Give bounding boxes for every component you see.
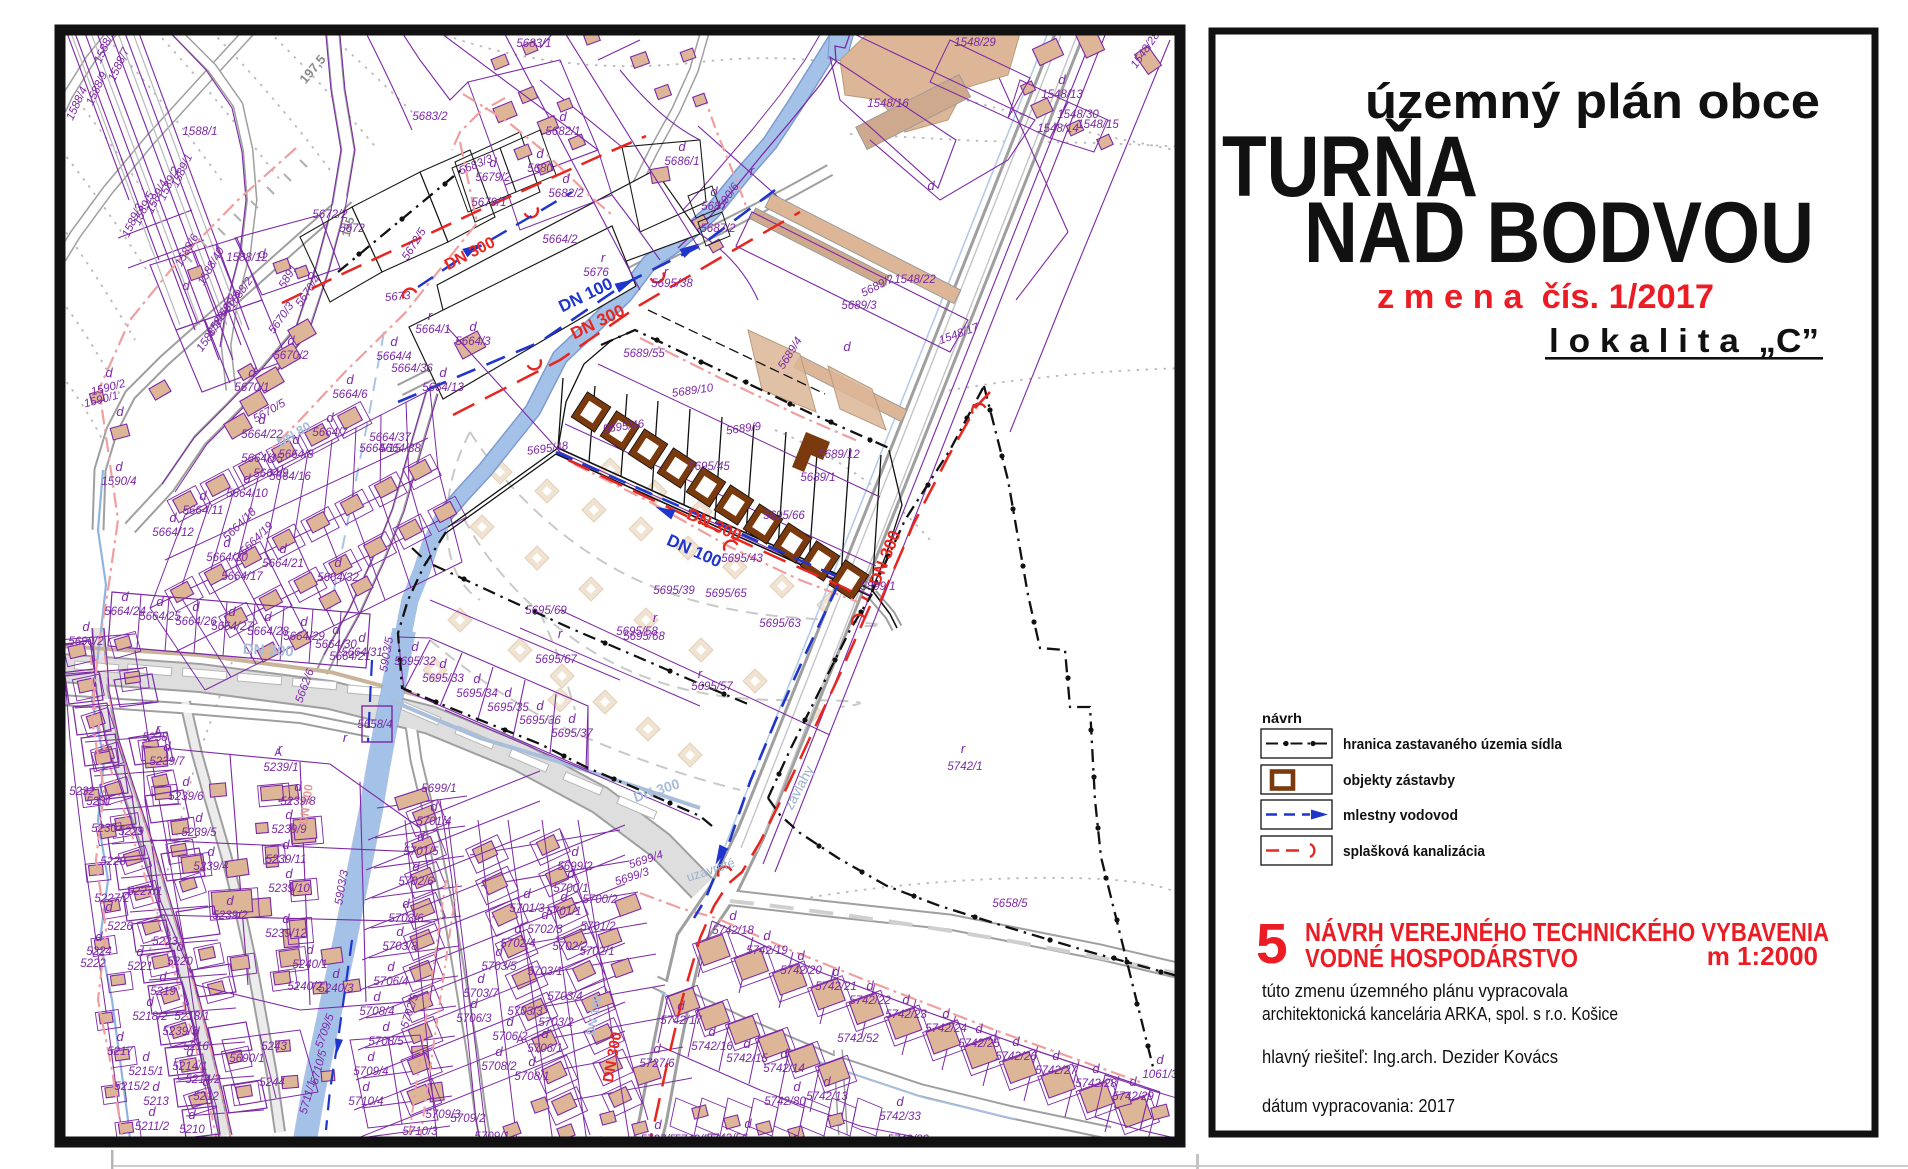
svg-text:5676: 5676 [583,267,609,279]
svg-text:5228: 5228 [100,856,126,868]
svg-text:5664/2: 5664/2 [542,234,578,246]
svg-text:5664/8: 5664/8 [278,449,314,461]
svg-text:5706/3: 5706/3 [456,1013,492,1025]
svg-text:5212: 5212 [193,1091,219,1103]
svg-text:5239/9: 5239/9 [271,824,307,836]
svg-text:5664/11: 5664/11 [183,505,224,517]
svg-text:5742/25: 5742/25 [958,1038,1000,1050]
svg-text:d: d [182,774,190,789]
svg-text:5701/1: 5701/1 [546,906,581,918]
svg-text:z m e n a čís. 1/2017: z m e n a čís. 1/2017 [1377,278,1714,316]
svg-text:5664/6: 5664/6 [332,389,368,401]
svg-text:5682/2: 5682/2 [548,188,584,200]
svg-text:d: d [186,1044,194,1059]
svg-text:d: d [159,969,167,984]
svg-text:d: d [228,604,236,619]
svg-text:5683/1: 5683/1 [516,38,551,50]
svg-text:d: d [1012,1034,1020,1049]
svg-text:d: d [358,630,366,645]
svg-text:d: d [528,1054,536,1069]
svg-text:5695/35: 5695/35 [487,702,529,714]
svg-text:d: d [417,829,425,844]
svg-text:5664/22: 5664/22 [241,429,283,441]
svg-text:d: d [382,1019,390,1034]
svg-text:d: d [300,614,308,629]
svg-text:5240/1: 5240/1 [292,959,327,971]
svg-text:5742/1: 5742/1 [947,761,982,773]
svg-text:5702/3: 5702/3 [527,924,563,936]
svg-text:5742/29: 5742/29 [1112,1091,1154,1103]
svg-text:5211/2: 5211/2 [135,1121,170,1133]
svg-text:5217: 5217 [107,1046,133,1058]
svg-text:d: d [1156,1052,1164,1067]
svg-text:d: d [285,807,293,822]
svg-text:splašková kanalizácia: splašková kanalizácia [1343,844,1486,860]
svg-text:5695/36: 5695/36 [519,715,561,727]
svg-text:d: d [82,619,90,634]
svg-text:návrh: návrh [1262,710,1302,726]
svg-text:5239/11: 5239/11 [266,854,307,866]
svg-text:VODNÉ HOSPODÁRSTVO: VODNÉ HOSPODÁRSTVO [1305,943,1578,973]
svg-text:5686/1: 5686/1 [664,156,699,168]
svg-text:d: d [195,810,203,825]
svg-text:d: d [146,994,154,1009]
svg-text:r: r [428,308,433,323]
svg-text:5708/2: 5708/2 [481,1061,517,1073]
svg-text:d: d [148,1104,156,1119]
svg-text:d: d [843,339,851,354]
svg-text:5239/10: 5239/10 [268,883,310,895]
svg-text:r: r [698,666,703,681]
svg-text:d: d [866,978,874,993]
svg-text:5703/4: 5703/4 [547,991,582,1003]
svg-text:d: d [1058,72,1066,87]
svg-text:DN 300: DN 300 [242,641,294,661]
svg-text:5239/5: 5239/5 [181,827,217,839]
svg-text:5695/32: 5695/32 [394,656,436,668]
svg-text:5229: 5229 [118,826,144,838]
svg-text:5215/1: 5215/1 [128,1066,163,1078]
svg-text:5710/4: 5710/4 [348,1096,383,1108]
svg-text:d: d [258,412,266,427]
svg-text:d: d [279,541,287,556]
svg-text:1548/14: 1548/14 [1037,123,1079,135]
svg-text:5664/16: 5664/16 [269,471,311,483]
svg-text:d: d [121,589,129,604]
svg-text:d: d [536,698,544,713]
svg-text:d: d [202,1074,210,1089]
svg-text:d: d [282,911,290,926]
svg-text:d: d [942,1006,950,1021]
svg-text:d: d [373,989,381,1004]
svg-text:d: d [116,1029,124,1044]
svg-text:d: d [292,432,300,447]
svg-text:5695/39: 5695/39 [653,585,695,597]
svg-text:d: d [896,1094,904,1109]
svg-text:5742/14: 5742/14 [763,1063,805,1075]
svg-text:5226: 5226 [107,921,133,933]
svg-text:5703/8: 5703/8 [382,941,418,953]
svg-text:5679/2: 5679/2 [475,172,511,184]
svg-text:5742/80: 5742/80 [764,1096,806,1108]
svg-text:5689/3: 5689/3 [841,300,877,312]
svg-text:hranica zastavaného územia síd: hranica zastavaného územia sídla [1343,737,1563,753]
svg-text:5703/5: 5703/5 [481,961,517,973]
svg-text:d: d [346,372,354,387]
svg-text:5664/21: 5664/21 [329,651,371,663]
svg-text:d: d [156,594,164,609]
svg-text:1548/29: 1548/29 [954,37,996,49]
svg-text:d: d [207,844,215,859]
svg-text:d: d [285,866,293,881]
svg-text:5240/3: 5240/3 [318,983,354,995]
svg-text:5695/69: 5695/69 [525,605,567,617]
svg-text:5742/13: 5742/13 [806,1091,848,1103]
svg-text:d: d [402,896,410,911]
svg-text:d: d [334,555,342,570]
svg-text:5664/4: 5664/4 [376,351,411,363]
svg-text:d: d [258,246,266,261]
svg-text:5695/34: 5695/34 [456,688,498,700]
svg-text:5214/1: 5214/1 [172,1061,207,1073]
svg-text:d: d [653,1041,661,1056]
svg-text:5690/2: 5690/2 [68,636,104,648]
svg-text:5670/1: 5670/1 [234,382,269,394]
svg-text:d: d [470,996,478,1011]
svg-text:d: d [523,886,531,901]
svg-text:d: d [362,1079,370,1094]
svg-text:d: d [506,1014,514,1029]
svg-text:d: d [192,1024,200,1039]
svg-text:5700/2: 5700/2 [582,894,618,906]
svg-text:d: d [536,146,544,161]
svg-text:d: d [152,1079,160,1094]
svg-text:d: d [797,948,805,963]
svg-text:r: r [664,264,669,279]
svg-text:5703/7: 5703/7 [463,988,499,1000]
svg-text:d: d [248,365,256,380]
svg-text:5695/65: 5695/65 [705,588,747,600]
svg-text:1548/16: 1548/16 [867,98,909,110]
svg-text:5689/1: 5689/1 [800,472,835,484]
svg-text:m 1:2000: m 1:2000 [1707,941,1818,971]
svg-text:5727/6: 5727/6 [639,1058,675,1070]
svg-text:5701/4: 5701/4 [416,816,451,828]
svg-text:d: d [927,178,935,193]
svg-text:d: d [105,899,113,914]
svg-text:d: d [332,966,340,981]
svg-text:5664/7: 5664/7 [312,427,348,439]
svg-text:5658/5: 5658/5 [992,898,1028,910]
svg-text:NAD BODVOU: NAD BODVOU [1304,185,1814,281]
svg-text:5899/1: 5899/1 [860,581,895,593]
svg-text:5239/4: 5239/4 [193,861,228,873]
svg-text:5223: 5223 [152,936,178,948]
svg-text:d: d [182,278,190,293]
svg-text:5239/2: 5239/2 [212,910,248,922]
svg-text:5699/2: 5699/2 [557,861,593,873]
svg-text:5664/10: 5664/10 [226,488,268,500]
svg-text:5742/15: 5742/15 [726,1053,768,1065]
svg-text:5664/1: 5664/1 [415,324,450,336]
svg-text:architektonická kancelária ARK: architektonická kancelária ARKA, spol. s… [1262,1004,1618,1024]
svg-text:r: r [653,610,658,625]
svg-text:5703/6: 5703/6 [388,913,424,925]
svg-text:d: d [95,929,103,944]
svg-text:d: d [142,1049,150,1064]
svg-text:d: d [678,139,686,154]
svg-text:1548/15: 1548/15 [1077,119,1119,131]
svg-text:5742/52: 5742/52 [837,1033,879,1045]
svg-text:d: d [430,799,438,814]
svg-text:5664/35: 5664/35 [241,453,283,465]
svg-text:d: d [390,334,398,349]
svg-text:5702/6: 5702/6 [398,876,434,888]
svg-text:d: d [226,893,234,908]
svg-text:d: d [116,404,124,419]
svg-text:5695/45: 5695/45 [688,461,730,473]
svg-text:5664/21: 5664/21 [262,558,304,570]
svg-text:5742/16: 5742/16 [691,1041,733,1053]
svg-text:d: d [367,1049,375,1064]
svg-text:5742/23: 5742/23 [885,1009,927,1021]
svg-text:5695/67: 5695/67 [535,654,577,666]
svg-text:5695/38: 5695/38 [651,278,693,290]
svg-text:d: d [223,535,231,550]
svg-text:d: d [439,656,447,671]
svg-text:5232: 5232 [69,786,95,798]
svg-text:5742/21: 5742/21 [815,981,857,993]
svg-text:d: d [136,944,144,959]
svg-text:5742/19: 5742/19 [746,945,788,957]
svg-text:d: d [495,944,503,959]
svg-text:d: d [832,964,840,979]
svg-text:d: d [562,171,570,186]
svg-text:d: d [267,451,275,466]
svg-text:d: d [559,109,567,124]
svg-text:d: d [541,1026,549,1041]
svg-text:d: d [282,837,290,852]
svg-text:5664/12: 5664/12 [152,527,194,539]
svg-text:d: d [469,319,477,334]
svg-text:5673: 5673 [384,290,411,304]
svg-text:d: d [192,599,200,614]
svg-text:5701/2: 5701/2 [580,921,616,933]
svg-text:d: d [823,1074,831,1089]
svg-text:5221: 5221 [127,961,153,973]
svg-text:r: r [750,163,755,178]
svg-text:5709/2: 5709/2 [450,1113,486,1125]
svg-text:5708/5: 5708/5 [368,1036,404,1048]
svg-text:d: d [495,1044,503,1059]
svg-text:5687/2: 5687/2 [700,223,736,235]
svg-text:5695/57: 5695/57 [691,681,733,693]
svg-text:5244: 5244 [259,1077,285,1089]
svg-text:1061/3: 1061/3 [1142,1069,1178,1081]
svg-text:d: d [504,685,512,700]
svg-text:5708/4: 5708/4 [359,1006,394,1018]
svg-text:5672/2: 5672/2 [312,209,348,221]
svg-text:5695/68: 5695/68 [623,631,665,643]
svg-text:5709/4: 5709/4 [353,1066,388,1078]
svg-text:d: d [541,907,549,922]
svg-text:5710/3: 5710/3 [402,1126,438,1138]
svg-text:d: d [708,1024,716,1039]
svg-text:d: d [568,711,576,726]
svg-text:d: d [743,1036,751,1051]
svg-text:5742/28: 5742/28 [1075,1078,1117,1090]
svg-text:5682/1: 5682/1 [545,126,580,138]
svg-text:5690/1: 5690/1 [229,1053,264,1065]
svg-text:5239/6: 5239/6 [168,791,204,803]
svg-text:5702/1: 5702/1 [579,946,614,958]
svg-text:d: d [744,1116,752,1131]
svg-text:A: A [516,1034,524,1046]
svg-text:5742/20: 5742/20 [780,965,822,977]
svg-text:d: d [473,671,481,686]
svg-text:5672: 5672 [339,223,365,235]
svg-text:d: d [729,908,737,923]
svg-text:5239/1: 5239/1 [263,762,298,774]
svg-text:d: d [439,365,447,380]
svg-text:5701/5: 5701/5 [403,846,439,858]
svg-text:d: d [169,510,177,525]
svg-text:5220: 5220 [167,956,193,968]
svg-text:1548/22: 1548/22 [894,274,936,286]
svg-text:5742/26: 5742/26 [995,1051,1037,1063]
svg-text:1588/1: 1588/1 [182,126,217,138]
svg-text:5695/33: 5695/33 [422,673,464,685]
svg-text:5219: 5219 [150,986,176,998]
svg-text:5695/37: 5695/37 [551,728,593,740]
svg-text:d: d [975,1021,983,1036]
svg-text:d: d [332,622,340,637]
svg-text:5239/7: 5239/7 [149,756,185,768]
svg-text:5664/3: 5664/3 [455,336,491,348]
svg-text:d: d [902,992,910,1007]
svg-text:d: d [411,639,419,654]
svg-text:5679/1: 5679/1 [471,197,506,209]
svg-text:objekty zástavby: objekty zástavby [1343,773,1455,789]
svg-text:d: d [306,942,314,957]
svg-text:l o k a l i t a „C”: l o k a l i t a „C” [1549,322,1819,359]
svg-text:5742/24: 5742/24 [925,1023,967,1035]
svg-text:r: r [601,250,606,265]
svg-text:5701/3: 5701/3 [509,903,545,915]
svg-text:5708/1: 5708/1 [514,1071,549,1083]
svg-text:hlavný riešiteľ: Ing.arch. Dez: hlavný riešiteľ: Ing.arch. Dezider Kovác… [1262,1047,1558,1067]
svg-text:d: d [163,739,171,754]
svg-text:5: 5 [1256,912,1288,976]
svg-text:5213: 5213 [143,1096,169,1108]
svg-text:5243: 5243 [261,1041,287,1053]
svg-text:5699/1: 5699/1 [421,783,456,795]
svg-text:d: d [387,959,395,974]
svg-text:5742/22: 5742/22 [849,995,891,1007]
svg-text:A: A [154,726,162,738]
svg-text:5742/27: 5742/27 [1035,1065,1077,1077]
svg-text:r: r [558,626,563,641]
svg-text:5742/18: 5742/18 [712,925,754,937]
svg-text:d: d [1129,1074,1137,1089]
svg-text:d: d [412,859,420,874]
svg-text:5230: 5230 [91,823,117,835]
svg-text:d: d [188,1107,196,1122]
svg-text:d: d [326,410,334,425]
svg-text:d: d [115,459,123,474]
svg-text:d: d [1052,1048,1060,1063]
svg-text:d: d [477,971,485,986]
svg-text:túto zmenu územného plánu vypr: túto zmenu územného plánu vypracovala [1262,981,1569,1001]
svg-text:d: d [243,471,251,486]
svg-text:d: d [763,928,771,943]
svg-text:5215/2: 5215/2 [114,1081,150,1093]
svg-text:d: d [567,866,575,881]
svg-text:d: d [105,365,113,380]
svg-text:5670/2: 5670/2 [273,350,309,362]
svg-text:1590/4: 1590/4 [101,476,136,488]
svg-text:5664/13: 5664/13 [422,382,464,394]
svg-text:r: r [961,741,966,756]
svg-text:5664/15: 5664/15 [359,443,401,455]
svg-text:5680: 5680 [527,163,553,175]
svg-text:dátum vypracovania: 2017: dátum vypracovania: 2017 [1262,1096,1455,1116]
svg-text:d: d [199,488,207,503]
svg-text:5702/4: 5702/4 [500,938,535,950]
svg-text:d: d [287,333,295,348]
svg-text:d: d [307,267,315,282]
svg-text:d: d [294,779,302,794]
svg-text:5227/1: 5227/1 [127,886,162,898]
svg-text:5218/1: 5218/1 [174,1011,209,1023]
svg-text:5695/63: 5695/63 [759,618,801,630]
svg-text:5664/17: 5664/17 [221,571,263,583]
svg-text:5742/33: 5742/33 [879,1111,921,1123]
svg-text:d: d [677,998,685,1013]
svg-text:5689/55: 5689/55 [623,348,665,360]
svg-text:d: d [793,1079,801,1094]
svg-text:d: d [176,939,184,954]
svg-text:d: d [560,889,568,904]
svg-text:5695/43: 5695/43 [721,553,763,565]
svg-text:1548/13: 1548/13 [1041,89,1083,101]
svg-text:5222: 5222 [80,958,106,970]
svg-text:5695/66: 5695/66 [763,510,805,522]
svg-text:d: d [1092,1061,1100,1076]
svg-text:5658/4: 5658/4 [357,719,392,731]
svg-text:5703/1: 5703/1 [527,966,562,978]
svg-text:d: d [571,844,579,859]
svg-text:d: d [654,1117,662,1132]
svg-text:5224: 5224 [86,946,112,958]
svg-text:5742/17: 5742/17 [660,1015,702,1027]
svg-text:5210: 5210 [179,1124,205,1136]
svg-text:5218/2: 5218/2 [132,1011,168,1023]
svg-text:5239/12: 5239/12 [265,928,307,940]
svg-text:A: A [274,747,282,759]
svg-text:d: d [396,924,404,939]
svg-text:5664/32: 5664/32 [317,572,359,584]
svg-text:d: d [710,184,718,199]
svg-text:mlestny vodovod: mlestny vodovod [1343,808,1458,824]
svg-text:d: d [514,921,522,936]
svg-text:r: r [343,730,348,745]
svg-text:5683/2: 5683/2 [412,111,448,123]
svg-text:5706/4: 5706/4 [373,976,408,988]
svg-text:d: d [489,155,497,170]
svg-text:d: d [780,1046,788,1061]
svg-text:5689/12: 5689/12 [818,449,860,461]
